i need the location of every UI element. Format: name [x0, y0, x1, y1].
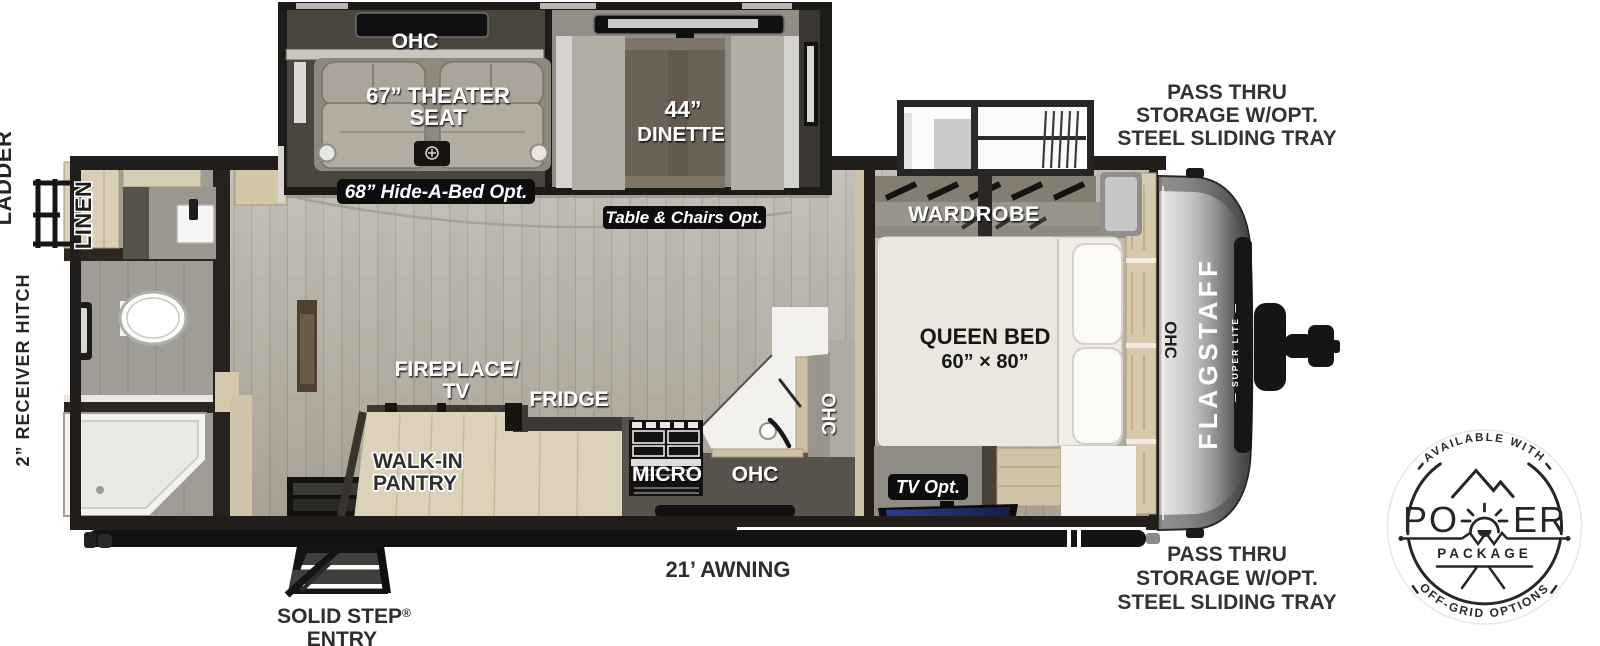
svg-text:WALK-IN: WALK-IN: [373, 450, 463, 473]
svg-text:STEEL SLIDING TRAY: STEEL SLIDING TRAY: [1117, 591, 1336, 614]
svg-text:OHC: OHC: [817, 393, 838, 436]
svg-text:P: P: [1403, 499, 1427, 540]
svg-text:60” × 80”: 60” × 80”: [941, 351, 1028, 373]
svg-text:PANTRY: PANTRY: [373, 472, 457, 495]
svg-text:O: O: [1429, 499, 1457, 540]
svg-text:— SUPER LITE —: — SUPER LITE —: [1230, 302, 1240, 402]
svg-text:OHC: OHC: [392, 30, 439, 53]
svg-text:68” Hide-A-Bed Opt.: 68” Hide-A-Bed Opt.: [345, 182, 528, 203]
svg-text:21’ AWNING: 21’ AWNING: [665, 557, 790, 582]
svg-text:OHC: OHC: [1161, 321, 1180, 359]
svg-text:SEAT: SEAT: [409, 105, 467, 130]
svg-text:TV Opt.: TV Opt.: [896, 477, 960, 497]
svg-text:R: R: [1539, 499, 1565, 540]
svg-text:QUEEN BED: QUEEN BED: [920, 324, 1051, 349]
svg-text:Table & Chairs Opt.: Table & Chairs Opt.: [605, 208, 762, 227]
svg-text:STORAGE W/OPT.: STORAGE W/OPT.: [1136, 104, 1318, 127]
svg-text:PACKAGE: PACKAGE: [1437, 546, 1532, 561]
svg-text:TV: TV: [443, 380, 470, 403]
svg-text:44”: 44”: [664, 96, 701, 122]
svg-text:LADDER: LADDER: [0, 131, 16, 226]
svg-text:FRIDGE: FRIDGE: [529, 388, 608, 411]
svg-text:ENTRY: ENTRY: [307, 628, 377, 646]
svg-text:FIREPLACE/: FIREPLACE/: [395, 358, 520, 381]
svg-text:2” RECEIVER HITCH: 2” RECEIVER HITCH: [13, 273, 33, 466]
svg-text:E: E: [1513, 499, 1537, 540]
svg-text:SOLID STEP®: SOLID STEP®: [277, 605, 411, 628]
svg-text:STORAGE W/OPT.: STORAGE W/OPT.: [1136, 567, 1318, 590]
svg-text:STEEL SLIDING TRAY: STEEL SLIDING TRAY: [1117, 127, 1336, 150]
svg-text:WARDROBE: WARDROBE: [908, 202, 1040, 226]
svg-text:PASS THRU: PASS THRU: [1167, 543, 1287, 566]
svg-text:PASS THRU: PASS THRU: [1167, 81, 1287, 104]
svg-text:DINETTE: DINETTE: [637, 123, 725, 146]
svg-text:FLAGSTAFF: FLAGSTAFF: [1193, 256, 1223, 449]
svg-text:OHC: OHC: [732, 463, 779, 486]
svg-text:LINEN: LINEN: [71, 181, 96, 250]
svg-text:MICRO: MICRO: [632, 463, 702, 486]
